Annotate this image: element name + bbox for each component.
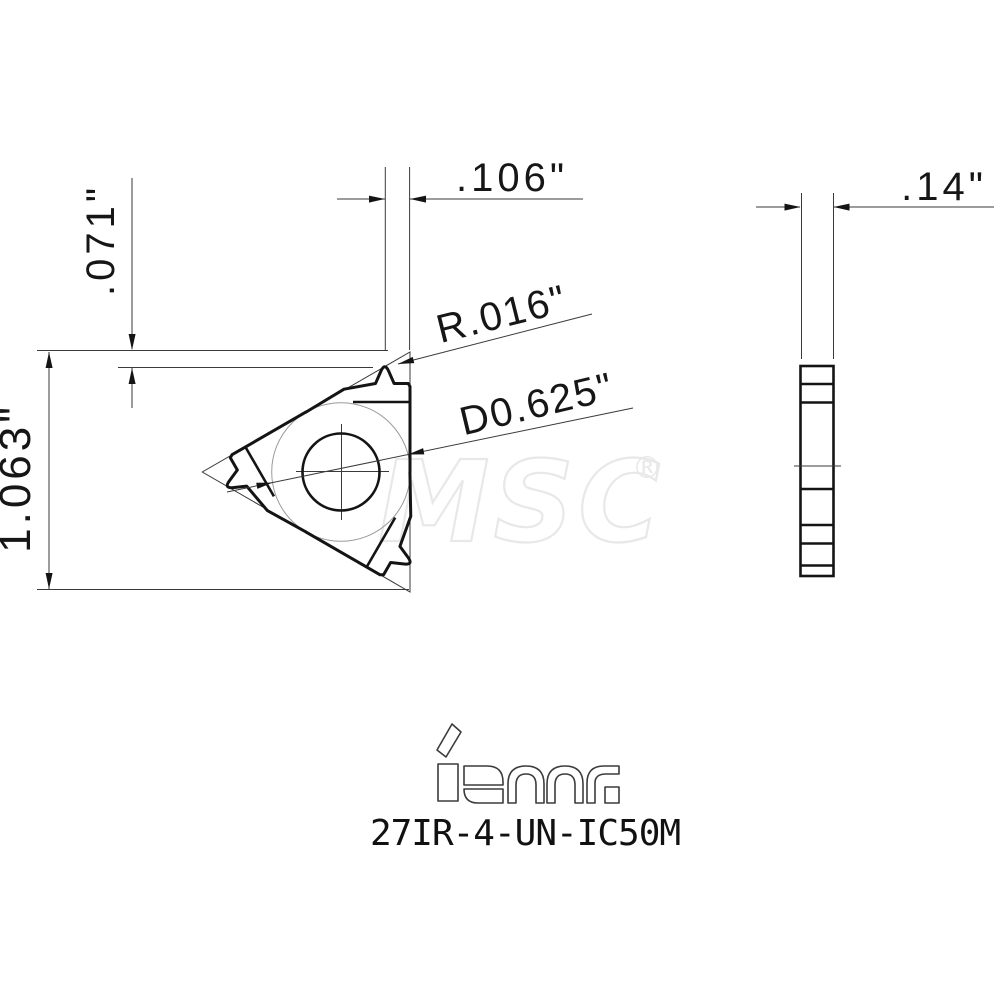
arrowhead xyxy=(834,204,850,211)
arrowhead xyxy=(46,352,53,368)
logo-s-bottom xyxy=(464,789,503,803)
dim-inscribed-diameter-label: D0.625" xyxy=(455,365,618,444)
dim-nose-radius-label: R.016" xyxy=(432,277,572,352)
part-number: 27IR-4-UN-IC50M xyxy=(370,813,680,854)
branding: iscar 27IR-4-UN-IC50M xyxy=(370,724,680,854)
dim-tip-width-label: .106" xyxy=(456,156,568,200)
logo-a xyxy=(547,766,583,803)
side-profile-segments xyxy=(801,384,834,566)
logo-s-top xyxy=(464,766,503,785)
side-view: .14" xyxy=(756,165,994,576)
msc-watermark: MSC ® xyxy=(378,438,664,568)
logo-i-stem xyxy=(438,764,458,801)
arrowhead xyxy=(410,196,426,203)
watermark-registered-mark: ® xyxy=(632,451,662,486)
arrowhead xyxy=(369,196,385,203)
arrowhead xyxy=(129,368,136,384)
drawing-canvas: MSC ® D0.625" xyxy=(0,0,1000,1000)
iscar-logo: iscar xyxy=(437,724,619,803)
dim-height-label: 1.063" xyxy=(0,403,40,553)
technical-drawing: MSC ® D0.625" xyxy=(0,0,1000,1000)
logo-r-leg xyxy=(605,787,619,803)
arrowhead xyxy=(46,573,53,589)
arrowhead xyxy=(785,204,801,211)
arrowhead xyxy=(129,334,136,350)
dim-offset-label: .071" xyxy=(79,184,123,296)
dim-thickness: .14" xyxy=(756,165,994,359)
dim-nose-radius: R.016" xyxy=(398,277,592,364)
watermark-text: MSC xyxy=(378,438,664,568)
logo-c xyxy=(508,766,544,803)
dim-thickness-label: .14" xyxy=(901,165,987,209)
logo-i-dot xyxy=(437,724,461,757)
dim-offset: .071" xyxy=(37,178,388,408)
